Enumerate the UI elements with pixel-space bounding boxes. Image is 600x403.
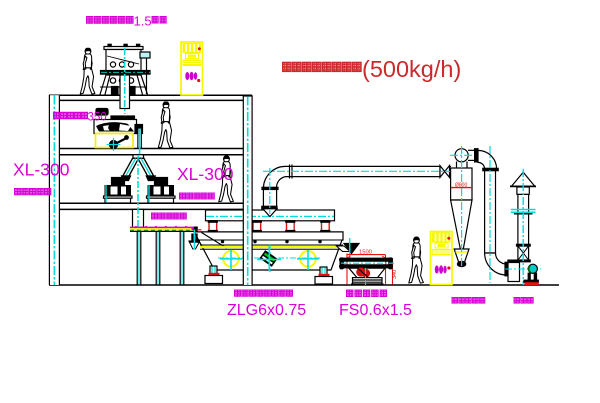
svg-text:340: 340 [392, 270, 398, 279]
svg-text:ZLG6x0.75: ZLG6x0.75 [227, 302, 306, 319]
svg-text:350: 350 [88, 112, 107, 124]
svg-text:XL-300: XL-300 [177, 164, 234, 184]
svg-text:1500: 1500 [359, 250, 372, 256]
svg-text:(500kg/h): (500kg/h) [362, 56, 461, 82]
svg-text:XL-300: XL-300 [13, 160, 70, 180]
svg-text:1.5: 1.5 [134, 14, 152, 29]
svg-text:FS0.6x1.5: FS0.6x1.5 [339, 302, 412, 319]
